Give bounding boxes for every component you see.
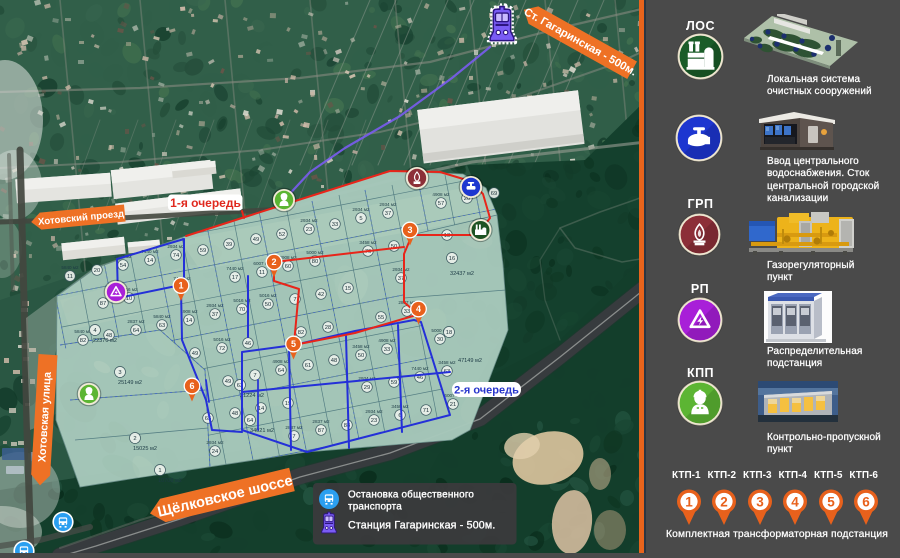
svg-text:16: 16 (449, 256, 455, 262)
svg-text:5016 м2: 5016 м2 (259, 293, 277, 298)
svg-text:59: 59 (391, 380, 397, 386)
svg-text:5000 м2: 5000 м2 (306, 250, 324, 255)
svg-text:3: 3 (756, 494, 764, 509)
svg-text:5: 5 (827, 494, 835, 509)
svg-text:74: 74 (173, 253, 180, 259)
svg-text:11: 11 (67, 274, 73, 280)
svg-text:28: 28 (325, 325, 331, 331)
svg-text:1: 1 (178, 281, 183, 291)
svg-text:5: 5 (359, 216, 362, 222)
svg-text:3458 м2: 3458 м2 (438, 360, 456, 365)
svg-text:82: 82 (298, 330, 304, 336)
svg-text:14: 14 (258, 406, 265, 412)
svg-text:82: 82 (80, 338, 86, 344)
svg-text:1: 1 (158, 468, 161, 474)
svg-text:17: 17 (232, 275, 238, 281)
svg-text:2837 м2: 2837 м2 (312, 419, 330, 424)
svg-text:2934 м2: 2934 м2 (379, 202, 397, 207)
svg-text:60: 60 (285, 264, 291, 270)
svg-text:80: 80 (312, 259, 318, 265)
svg-text:2934 м2: 2934 м2 (352, 207, 370, 212)
svg-text:2: 2 (133, 436, 136, 442)
svg-text:Станция Гагаринская - 500м.: Станция Гагаринская - 500м. (348, 520, 496, 532)
svg-text:2934 м2: 2934 м2 (392, 267, 410, 272)
svg-text:транспорта: транспорта (348, 502, 402, 513)
svg-text:33: 33 (332, 222, 338, 228)
svg-text:7: 7 (253, 373, 256, 379)
svg-text:3: 3 (407, 225, 412, 235)
svg-text:63: 63 (159, 323, 165, 329)
svg-text:37: 37 (212, 312, 218, 318)
svg-text:2-я очередь: 2-я очередь (454, 384, 519, 396)
svg-text:2837 м2: 2837 м2 (127, 319, 145, 324)
svg-text:5840 м2: 5840 м2 (61, 265, 79, 270)
svg-text:61: 61 (305, 363, 311, 369)
svg-text:71: 71 (423, 408, 429, 414)
svg-text:37: 37 (385, 211, 391, 217)
svg-text:21224 м2: 21224 м2 (240, 393, 264, 399)
svg-text:18: 18 (446, 330, 452, 336)
svg-text:49: 49 (192, 351, 198, 357)
svg-text:7440 м2: 7440 м2 (411, 366, 429, 371)
svg-text:2934 м2: 2934 м2 (167, 244, 185, 249)
svg-text:69: 69 (491, 191, 497, 197)
svg-text:59: 59 (200, 248, 206, 254)
svg-text:2: 2 (721, 494, 729, 509)
svg-text:4908 м2: 4908 м2 (432, 192, 450, 197)
svg-text:64: 64 (247, 418, 254, 424)
svg-text:2934 м2: 2934 м2 (206, 303, 224, 308)
svg-text:14: 14 (147, 258, 154, 264)
svg-text:64: 64 (133, 328, 140, 334)
svg-text:7440 м2: 7440 м2 (226, 266, 244, 271)
svg-text:30: 30 (437, 337, 443, 343)
svg-text:3: 3 (118, 370, 121, 376)
svg-text:2934 м2: 2934 м2 (300, 218, 318, 223)
svg-text:4908 м2: 4908 м2 (378, 338, 396, 343)
svg-text:4908 м2: 4908 м2 (272, 359, 290, 364)
svg-text:11: 11 (259, 270, 265, 276)
svg-text:5016 м2: 5016 м2 (213, 337, 231, 342)
svg-text:42: 42 (318, 292, 324, 298)
svg-text:23: 23 (306, 227, 312, 233)
svg-text:70: 70 (239, 307, 245, 313)
svg-text:7: 7 (293, 297, 296, 303)
svg-text:47149 м2: 47149 м2 (458, 358, 482, 364)
svg-text:87: 87 (318, 428, 324, 434)
svg-text:2: 2 (271, 257, 276, 267)
svg-text:4908 м2: 4908 м2 (180, 309, 198, 314)
svg-text:4: 4 (791, 494, 799, 509)
svg-text:2934 м2: 2934 м2 (365, 409, 383, 414)
svg-text:46: 46 (245, 341, 251, 347)
svg-text:50: 50 (265, 302, 271, 308)
svg-text:24: 24 (212, 449, 219, 455)
svg-text:2837 м2: 2837 м2 (285, 425, 303, 430)
svg-text:6: 6 (862, 494, 870, 509)
svg-text:10708 м2: 10708 м2 (158, 478, 182, 484)
svg-text:50: 50 (358, 353, 364, 359)
svg-text:57: 57 (438, 201, 444, 207)
svg-text:55: 55 (378, 315, 384, 321)
svg-text:32437 м2: 32437 м2 (450, 271, 474, 277)
svg-text:1-я очередь: 1-я очередь (170, 196, 241, 210)
svg-text:15025 м2: 15025 м2 (133, 446, 157, 452)
svg-text:4: 4 (416, 304, 421, 314)
svg-text:48: 48 (232, 411, 238, 417)
svg-text:25149 м2: 25149 м2 (118, 380, 142, 386)
svg-text:29: 29 (364, 385, 370, 391)
svg-text:20: 20 (94, 268, 100, 274)
svg-text:64: 64 (278, 368, 285, 374)
svg-text:39: 39 (226, 242, 232, 248)
svg-text:7: 7 (292, 434, 295, 440)
svg-text:3458 м2: 3458 м2 (352, 344, 370, 349)
svg-text:14: 14 (186, 318, 193, 324)
svg-text:52: 52 (279, 232, 285, 238)
svg-text:5: 5 (291, 339, 296, 349)
svg-text:54: 54 (120, 263, 127, 269)
svg-text:33: 33 (404, 309, 410, 315)
svg-text:48: 48 (331, 358, 337, 364)
svg-text:72: 72 (219, 346, 225, 352)
svg-text:Остановка общественного: Остановка общественного (348, 490, 474, 501)
svg-text:1: 1 (685, 494, 693, 509)
svg-text:33: 33 (384, 347, 390, 353)
svg-text:3458 м2: 3458 м2 (359, 240, 377, 245)
svg-text:22370 м2: 22370 м2 (93, 338, 117, 344)
svg-text:23: 23 (371, 418, 377, 424)
svg-text:21: 21 (450, 402, 456, 408)
svg-text:2934 м2: 2934 м2 (206, 440, 224, 445)
svg-text:87: 87 (100, 301, 106, 307)
svg-text:49: 49 (253, 237, 259, 243)
svg-text:6: 6 (189, 381, 194, 391)
svg-text:49: 49 (225, 379, 231, 385)
svg-text:5840 м2: 5840 м2 (153, 314, 171, 319)
svg-text:15: 15 (345, 286, 351, 292)
